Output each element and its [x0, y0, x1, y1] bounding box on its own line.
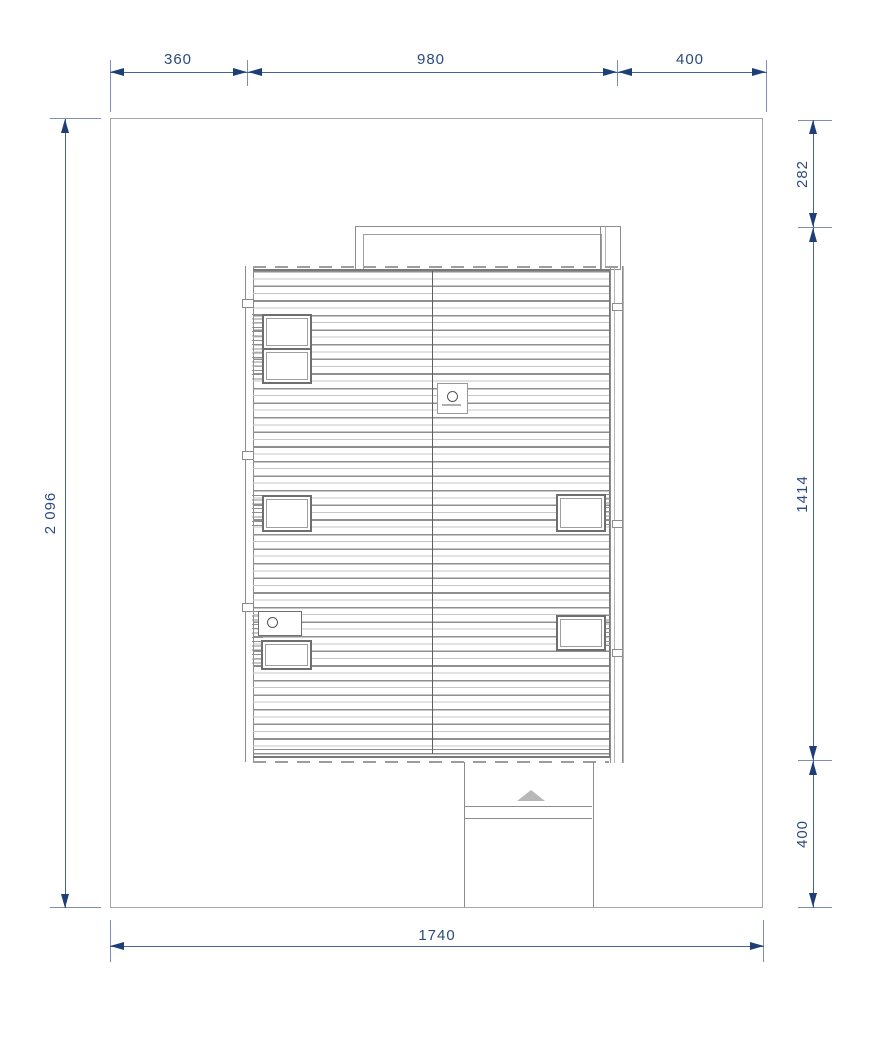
eave-dashed-line-top: [253, 266, 620, 268]
dim-arrow: [248, 68, 262, 76]
dim-arrow: [809, 893, 817, 907]
entrance-step-line: [464, 818, 592, 819]
gutter-bracket: [612, 303, 623, 311]
skylight-lower-left: [261, 640, 312, 670]
dim-arrow: [618, 68, 632, 76]
terrace-inner-line: [363, 234, 602, 269]
skylight-lower-right: [556, 615, 606, 651]
dim-arrow: [809, 228, 817, 242]
extension-line: [110, 920, 111, 962]
roof-vent-outlet-icon: [267, 617, 278, 628]
extension-tick: [798, 907, 832, 908]
dimension-line-top: [110, 72, 767, 73]
skylight-top-left-lower: [262, 348, 312, 384]
dim-arrow: [603, 68, 617, 76]
dim-arrow: [110, 68, 124, 76]
dim-arrow: [750, 942, 764, 950]
dim-label-top-seg1: 360: [148, 52, 208, 68]
chimney-mark-line: [442, 404, 461, 406]
dim-arrow: [110, 942, 124, 950]
dim-label-right-seg2: 1414: [795, 459, 811, 529]
right-gutter-inner-line: [614, 266, 615, 763]
entrance-step-line: [464, 806, 592, 807]
gutter-bracket: [242, 299, 254, 308]
entrance-direction-triangle-icon: [517, 790, 545, 801]
roof-plan-drawing: 360 980 400 2 096 282 1414 400 1740: [0, 0, 874, 1050]
extension-line: [763, 920, 764, 962]
chimney-flue-icon: [447, 391, 458, 402]
roof-bottom-inner-line: [253, 749, 609, 750]
dimension-line-bottom: [110, 946, 764, 947]
extension-tick: [50, 118, 101, 119]
gutter-bracket: [242, 451, 254, 460]
skylight-mid-right: [556, 494, 606, 532]
dim-arrow: [752, 68, 766, 76]
gutter-bracket: [612, 649, 623, 657]
dim-label-bottom-total: 1740: [407, 928, 467, 944]
dim-label-top-seg2: 980: [401, 52, 461, 68]
dim-arrow: [61, 119, 69, 133]
roof-ridge-line: [432, 271, 433, 754]
right-gutter-strip: [610, 266, 623, 763]
right-gutter-outer-line: [623, 266, 624, 763]
dimension-line-left: [65, 119, 66, 908]
extension-tick: [50, 907, 101, 908]
dim-arrow: [233, 68, 247, 76]
entrance-walkway: [464, 762, 594, 907]
dim-label-top-seg3: 400: [660, 52, 720, 68]
dim-arrow: [809, 213, 817, 227]
dim-label-right-seg3: 400: [795, 799, 811, 869]
gutter-bracket: [612, 520, 623, 528]
skylight-top-left-upper: [262, 314, 312, 350]
dim-arrow: [809, 120, 817, 134]
dim-label-left-total: 2 096: [43, 478, 59, 548]
extension-line: [766, 60, 767, 112]
dim-arrow: [809, 746, 817, 760]
dim-arrow: [809, 761, 817, 775]
roof-vent-box: [258, 611, 302, 636]
dim-label-right-seg1: 282: [795, 139, 811, 209]
skylight-mid-left: [262, 495, 312, 532]
terrace-pillar-inner-line: [605, 227, 606, 268]
dim-arrow: [61, 894, 69, 908]
terrace-pillar: [600, 226, 621, 270]
